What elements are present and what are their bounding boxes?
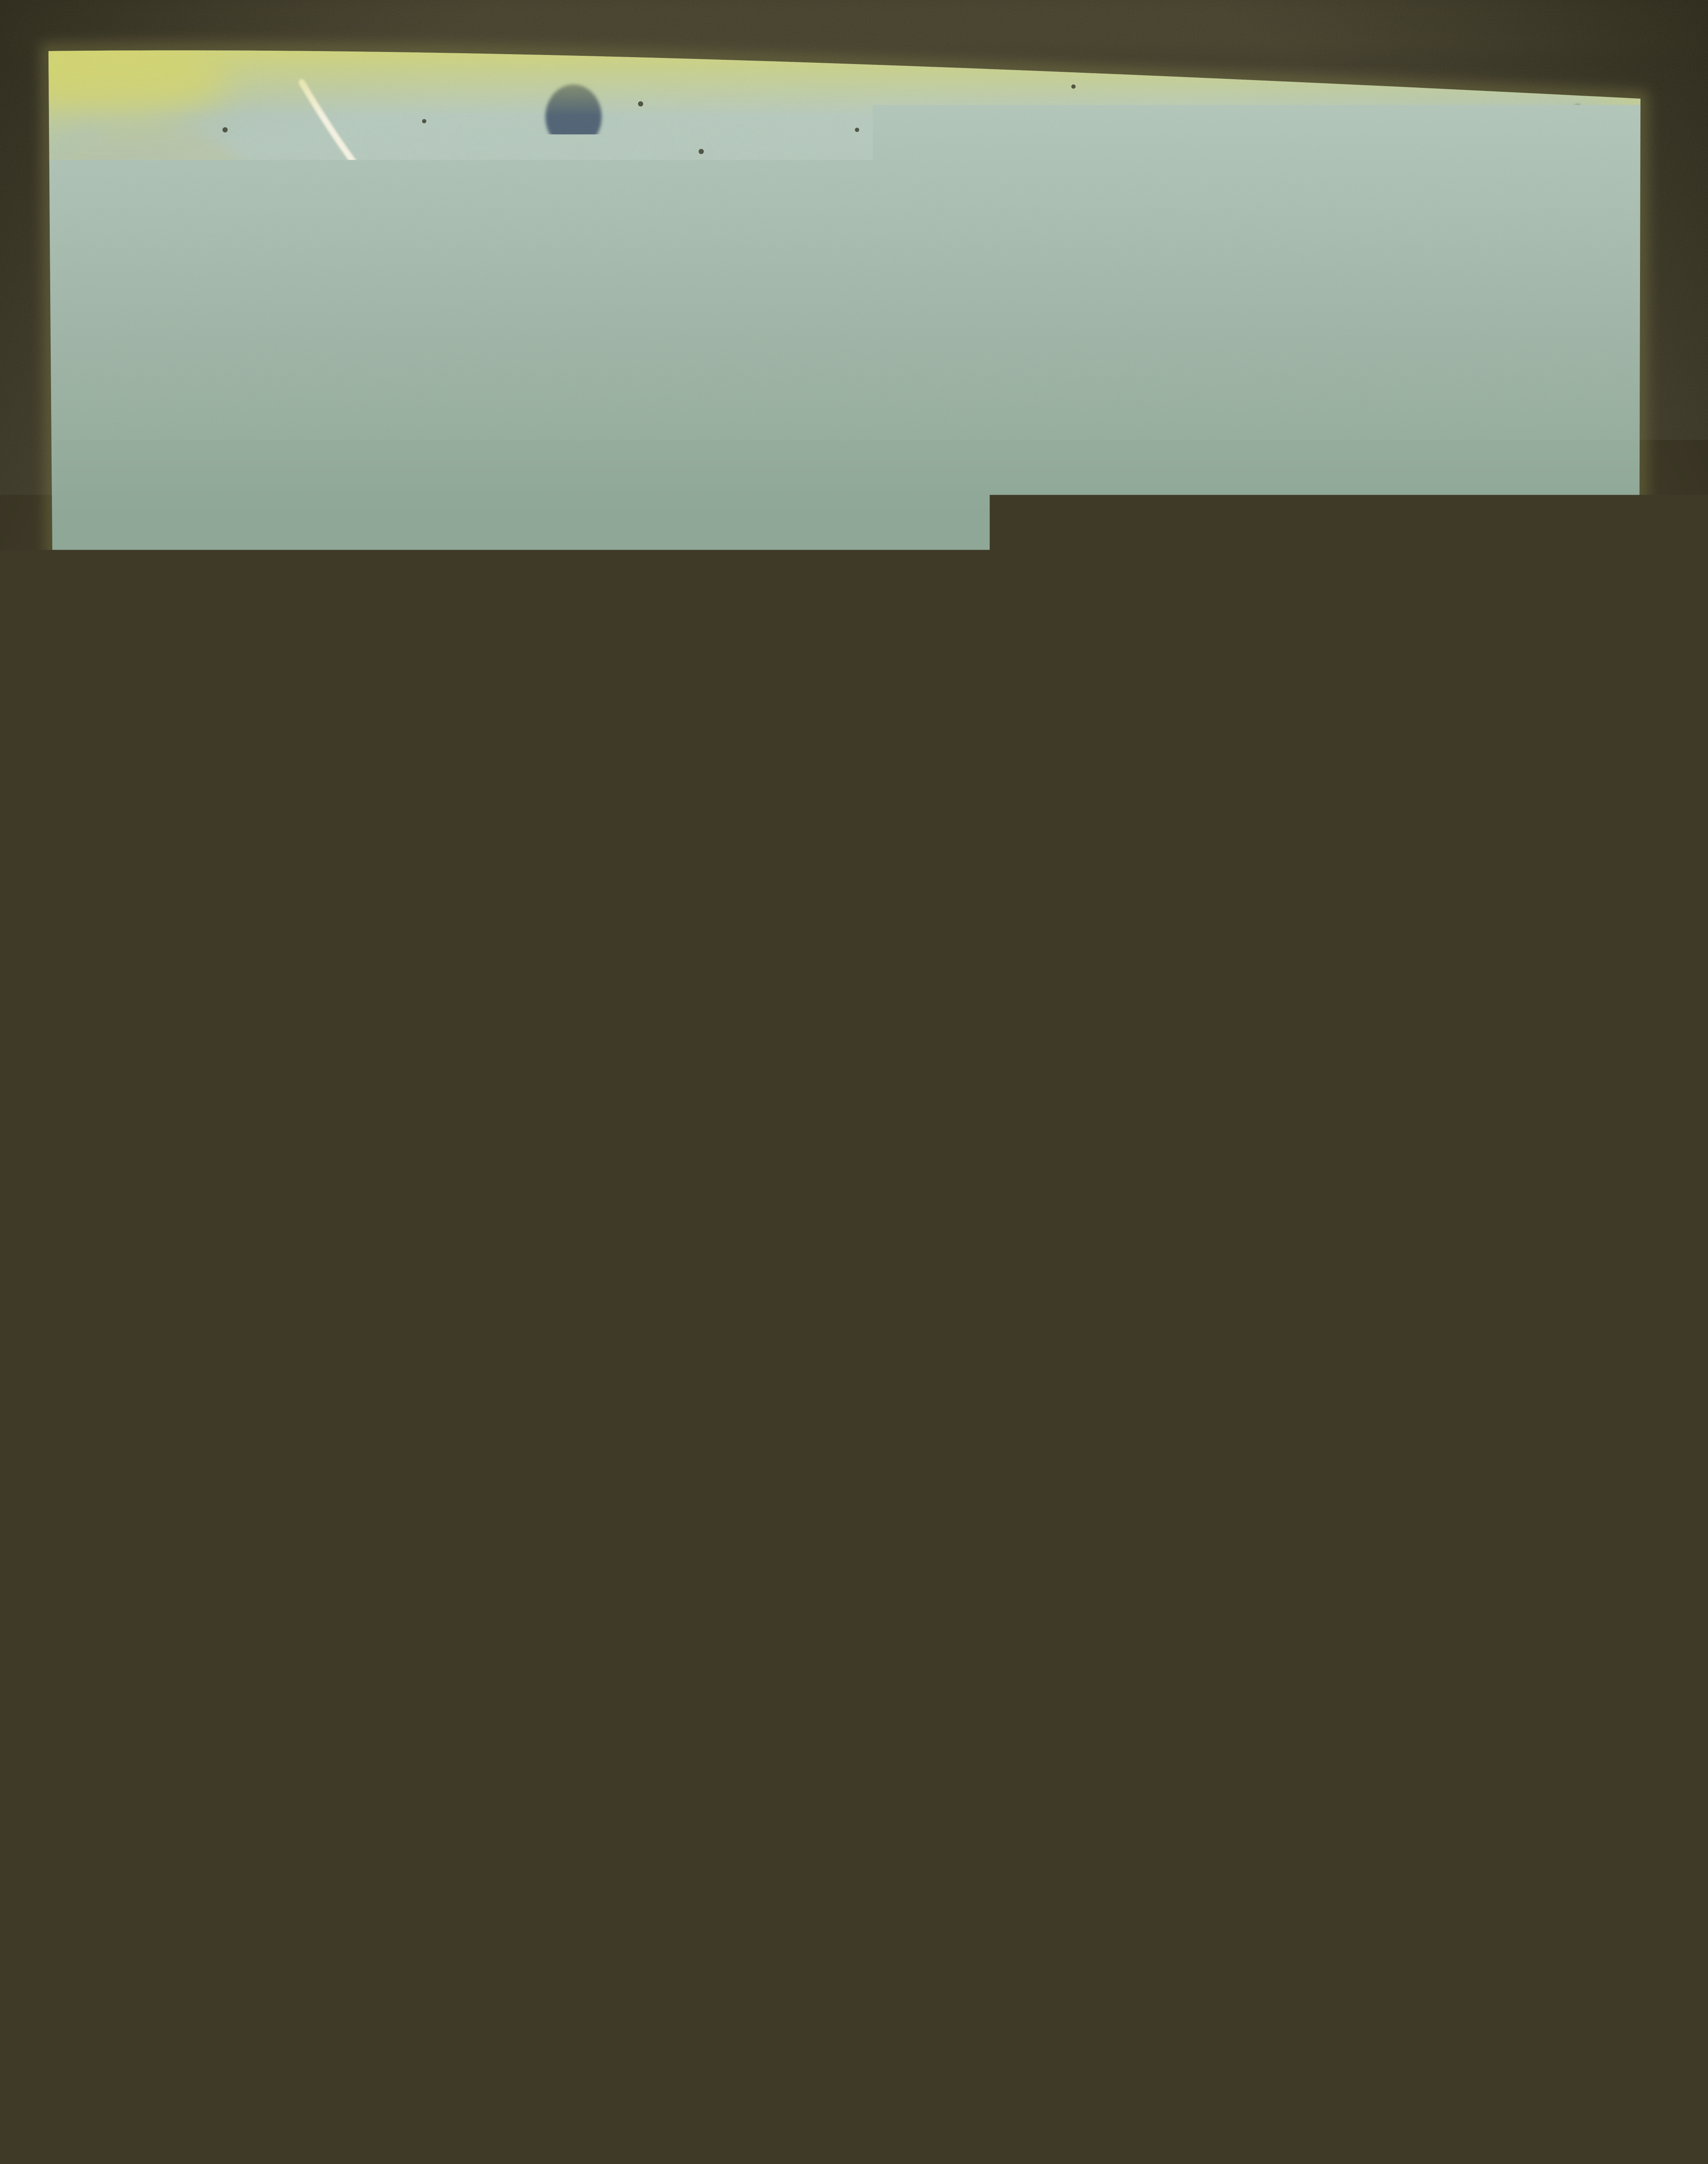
film-grain-dark (0, 0, 1708, 2164)
slide-scan (0, 0, 1708, 2164)
aerial-photo-slide (0, 0, 1708, 2164)
